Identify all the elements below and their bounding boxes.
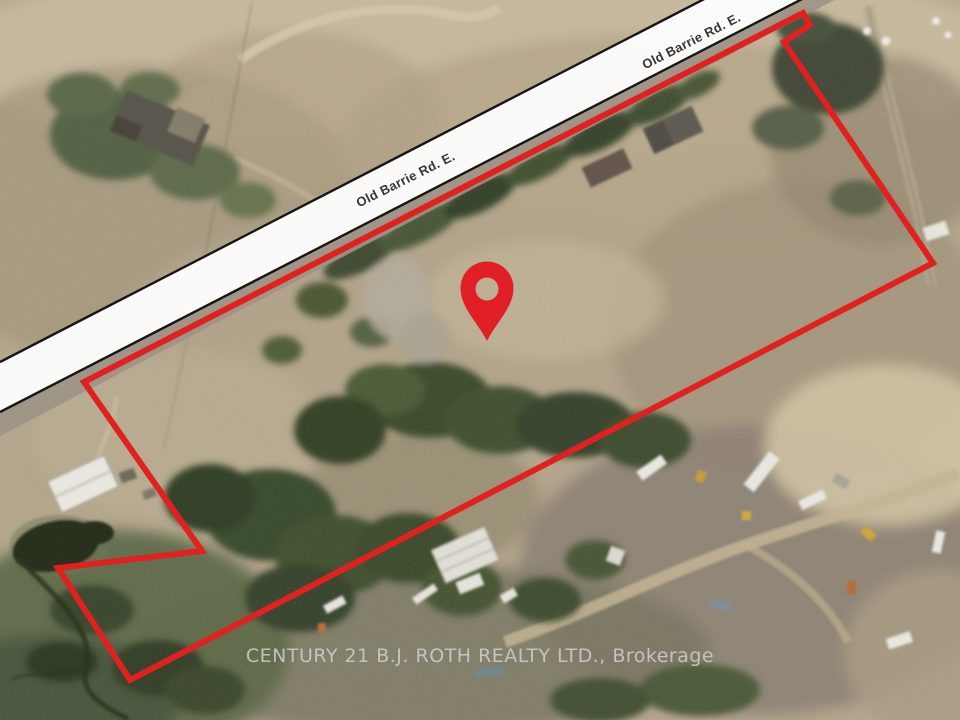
watermark-brokerage: CENTURY 21 B.J. ROTH REALTY LTD., Broker…: [0, 645, 960, 667]
map-canvas: [0, 0, 960, 720]
aerial-map: Old Barrie Rd. E. Old Barrie Rd. E. CENT…: [0, 0, 960, 720]
